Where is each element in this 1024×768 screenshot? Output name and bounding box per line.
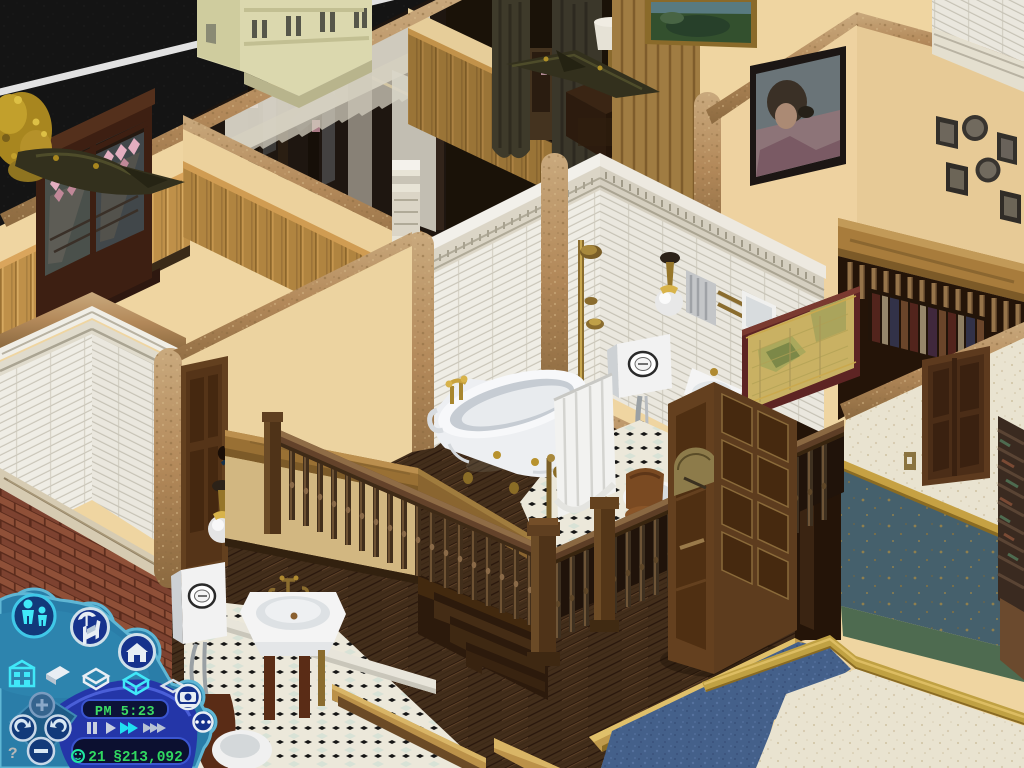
svg-text:PM 5:23: PM 5:23 [95, 705, 155, 720]
svg-text:21: 21 [88, 750, 106, 766]
svg-text:§213,092: §213,092 [113, 750, 183, 766]
svg-text:?: ? [8, 745, 18, 763]
